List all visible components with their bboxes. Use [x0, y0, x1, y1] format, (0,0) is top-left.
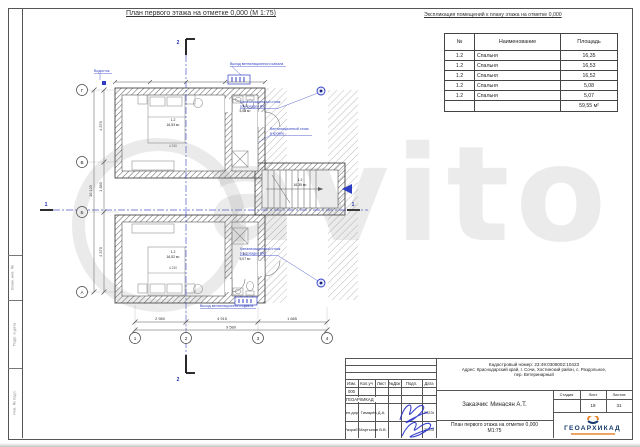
tb-header-list: Лист [375, 379, 388, 387]
room-num: 1.2 [445, 61, 475, 71]
room-explication-table: № Наименование Площадь 1.2 Спальня 16,35… [444, 33, 618, 112]
table-row: 1.2 Спальня 16,52 [445, 71, 618, 81]
axis-label: 2 [185, 336, 188, 341]
axis-bubbles-left: Г В Б А [77, 85, 88, 298]
interior-dimension: 4 230 [169, 266, 177, 270]
interior-dimension: 4 230 [169, 144, 177, 148]
dimension-label: 2 980 [155, 316, 166, 321]
tb-org: ГЕОАРХИКАД [346, 397, 386, 402]
room-num: 1.2 [445, 71, 475, 81]
frame-stamp-label: Подп. и дата [12, 317, 17, 353]
room-name: Спальня [475, 51, 561, 61]
dimension-label: 1 380 [98, 181, 103, 192]
room-area: 5,07 м² [239, 257, 251, 261]
tb-name-razrab: Мартынов В.В. [358, 421, 388, 438]
empty-cell [445, 101, 475, 112]
room-area: 5,08 м² [239, 109, 251, 113]
table-total-row: 59,55 м² [445, 101, 618, 112]
tb-sheet-title-line2: М1:75 [436, 428, 553, 434]
plan-title: План первого этажа на отметке 0,000 (М 1… [126, 10, 276, 17]
room-area: 16,52 м² [167, 255, 181, 259]
tb-doc-number: 000 [345, 387, 358, 395]
tb-header-data: Дата [422, 379, 436, 387]
axis-label: Б [80, 210, 83, 215]
tb-listov-header: Листов [606, 390, 632, 399]
room-number: 1.2 [243, 252, 248, 256]
vent-riser-label: Вентиляционный стояк [270, 127, 309, 131]
axis-bubbles-bottom: 1 2 3 4 [130, 333, 333, 344]
tb-stage-header: Стадия [553, 390, 580, 399]
signatures [390, 398, 446, 440]
tb-line [345, 365, 436, 366]
frame-stamp-label: Инв. № подл. [12, 385, 17, 421]
room-area: 16,52 [561, 71, 618, 81]
room-area: 16,53 м² [167, 123, 181, 127]
room-area: 16,35 [561, 51, 618, 61]
explication-title: Экспликация помещений к плану этажа на о… [424, 12, 562, 18]
axis-label: 1 [134, 336, 137, 341]
sewer-riser-label: Канализационный стояк [240, 247, 281, 251]
tb-cadastre-block: Кадастровый номер: 23:49:0308002:10423 А… [438, 362, 630, 377]
tb-name-gendir: Тимарёв Д.А. [358, 403, 388, 421]
vent-exit-symbol [228, 75, 250, 84]
dimension-label: 1 685 [287, 316, 297, 321]
photo-edge [0, 443, 640, 447]
room-name: Спальня [475, 71, 561, 81]
tb-listov-value: 31 [606, 399, 632, 412]
geoarhikad-logo-text: ГЕОАРХИКАД [564, 425, 621, 432]
dimension-label: 4 370 [98, 246, 103, 257]
address-line: пер. Ветеринарный [438, 372, 630, 377]
tb-role-gendir: Ген.дир. [345, 403, 358, 421]
table-row: 1.2 Спальня 5,07 [445, 91, 618, 101]
table-row: 1.2 Спальня 16,35 [445, 51, 618, 61]
section-mark-label: 1 [352, 202, 355, 208]
table-row: 1.2 Спальня 5,08 [445, 81, 618, 91]
room-num: 1.2 [445, 91, 475, 101]
axis-label: 3 [257, 336, 260, 341]
axis-label: В [80, 160, 83, 165]
room-number: 1.2 [298, 178, 303, 182]
room-name: Спальня [475, 91, 561, 101]
room-num: 1.2 [445, 81, 475, 91]
vent-riser-label: в кровле [270, 132, 284, 136]
section-mark-label: 1 [45, 202, 48, 208]
logo-cell: ГЕОАРХИКАД [553, 412, 632, 438]
room-area: 5,07 [561, 91, 618, 101]
tb-sheet-title: План первого этажа на отметке 0,000 М1:7… [436, 422, 553, 434]
dimension-total-label: 10 120 [88, 184, 93, 197]
tb-header-ndok: №Док [388, 379, 401, 387]
room-name: Спальня [475, 81, 561, 91]
floor-plan: 2 2 1 1 Водосток Выход вентиляционного к… [20, 25, 370, 385]
tb-list-value: 19 [580, 399, 606, 412]
vent-exit-label: Выход вентиляционного канала [200, 304, 253, 308]
walls [115, 88, 345, 303]
vent-exit-label: Выход вентиляционного канала [230, 62, 283, 66]
tb-stage-value [553, 399, 580, 412]
logo-subline [571, 433, 615, 435]
room-area: 5,08 [561, 81, 618, 91]
total-area: 59,55 м² [561, 101, 618, 112]
room-number: 1.2 [171, 118, 176, 122]
dimension-total-label: 9 580 [226, 325, 237, 330]
section-mark-label: 2 [177, 377, 180, 383]
room-name: Спальня [475, 61, 561, 71]
frame-stamp-label: Взам. инв. № [10, 260, 15, 296]
tb-role-razrab: Разраб. [345, 421, 358, 438]
tb-header-koluch: Кол.уч [358, 379, 375, 387]
col-header-num: № [445, 34, 475, 51]
tb-header-izm: Изм. [345, 379, 358, 387]
tb-line [436, 420, 553, 421]
room-number: 1.2 [243, 104, 248, 108]
tb-list-header: Лист [580, 390, 606, 399]
downspout-symbol [102, 81, 106, 85]
axis-label: 4 [326, 336, 329, 341]
room-area: 16,35 м² [294, 183, 308, 187]
room-num: 1.2 [445, 51, 475, 61]
tb-line [345, 372, 436, 373]
col-header-name: Наименование [475, 34, 561, 51]
room-number: 1.2 [171, 250, 176, 254]
dimension-label: 4 370 [98, 120, 103, 131]
tb-client: Заказчик: Минасян А.Т. [436, 390, 553, 420]
drawing-sheet: Взам. инв. № Подп. и дата Инв. № подл. П… [0, 0, 640, 447]
table-row: 1.2 Спальня 16,53 [445, 61, 618, 71]
dimension-label: 4 915 [217, 316, 227, 321]
downspout-label: Водосток [94, 69, 110, 73]
tb-header-podp: Подп. [401, 379, 422, 387]
tb-line [388, 379, 389, 438]
col-header-area: Площадь [561, 34, 618, 51]
room-area: 16,53 [561, 61, 618, 71]
section-mark-label: 2 [177, 40, 180, 46]
empty-cell [475, 101, 561, 112]
geoarhikad-logo-icon [586, 416, 600, 425]
